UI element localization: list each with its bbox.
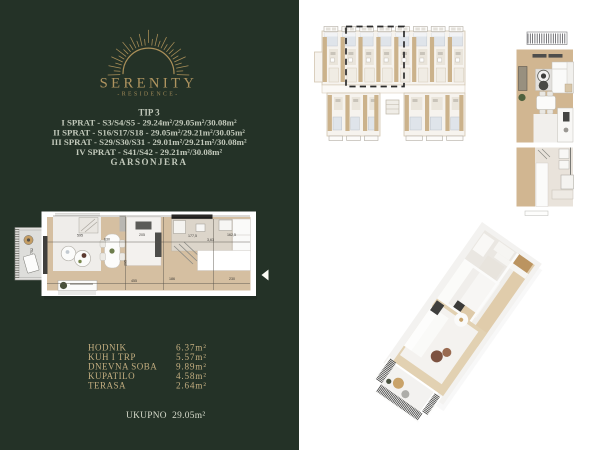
svg-text:TIP 3: TIP 3 bbox=[138, 108, 160, 118]
svg-text:177,5: 177,5 bbox=[188, 234, 197, 238]
svg-text:630: 630 bbox=[104, 238, 110, 242]
svg-text:752: 752 bbox=[30, 248, 34, 254]
svg-text:UKUPNO 29.05m²: UKUPNO 29.05m² bbox=[126, 411, 205, 421]
svg-text:III SPRAT - S29/S30/S31 - 29.0: III SPRAT - S29/S30/S31 - 29.01m²/29.21m… bbox=[51, 137, 247, 147]
svg-text:5.57m²: 5.57m² bbox=[176, 352, 207, 362]
svg-text:295: 295 bbox=[124, 260, 128, 266]
svg-text:KUH I TRP: KUH I TRP bbox=[88, 352, 136, 362]
svg-text:TERASA: TERASA bbox=[88, 381, 126, 391]
svg-text:9.89m²: 9.89m² bbox=[176, 362, 207, 372]
svg-text:205: 205 bbox=[139, 233, 145, 237]
svg-text:DNEVNA SOBA: DNEVNA SOBA bbox=[88, 362, 157, 372]
svg-text:4.58m²: 4.58m² bbox=[176, 371, 207, 381]
svg-text:I SPRAT - S3/S4/S5 - 29.24m²/2: I SPRAT - S3/S4/S5 - 29.24m²/29.05m²/30.… bbox=[61, 117, 237, 127]
svg-text:3,63: 3,63 bbox=[207, 238, 214, 242]
svg-text:455: 455 bbox=[131, 279, 137, 283]
svg-text:GARSONJERA: GARSONJERA bbox=[110, 157, 187, 167]
svg-text:II SPRAT - S16/S17/S18 - 29.05: II SPRAT - S16/S17/S18 - 29.05m²/29.21m²… bbox=[53, 127, 245, 137]
svg-text:6.37m²: 6.37m² bbox=[176, 343, 207, 353]
svg-text:-RESIDENCE-: -RESIDENCE- bbox=[117, 91, 179, 97]
svg-text:186: 186 bbox=[169, 277, 175, 281]
svg-text:230: 230 bbox=[229, 277, 235, 281]
svg-text:2.64m²: 2.64m² bbox=[176, 381, 207, 391]
svg-text:162,5: 162,5 bbox=[227, 233, 236, 237]
svg-text:KUPATILO: KUPATILO bbox=[88, 371, 135, 381]
svg-text:SERENITY: SERENITY bbox=[100, 76, 198, 92]
svg-text:IV SPRAT - S41/S42 - 29.21m²/3: IV SPRAT - S41/S42 - 29.21m²/30.08m² bbox=[76, 147, 223, 157]
svg-text:HODNIK: HODNIK bbox=[88, 343, 127, 353]
svg-text:595: 595 bbox=[77, 234, 83, 238]
